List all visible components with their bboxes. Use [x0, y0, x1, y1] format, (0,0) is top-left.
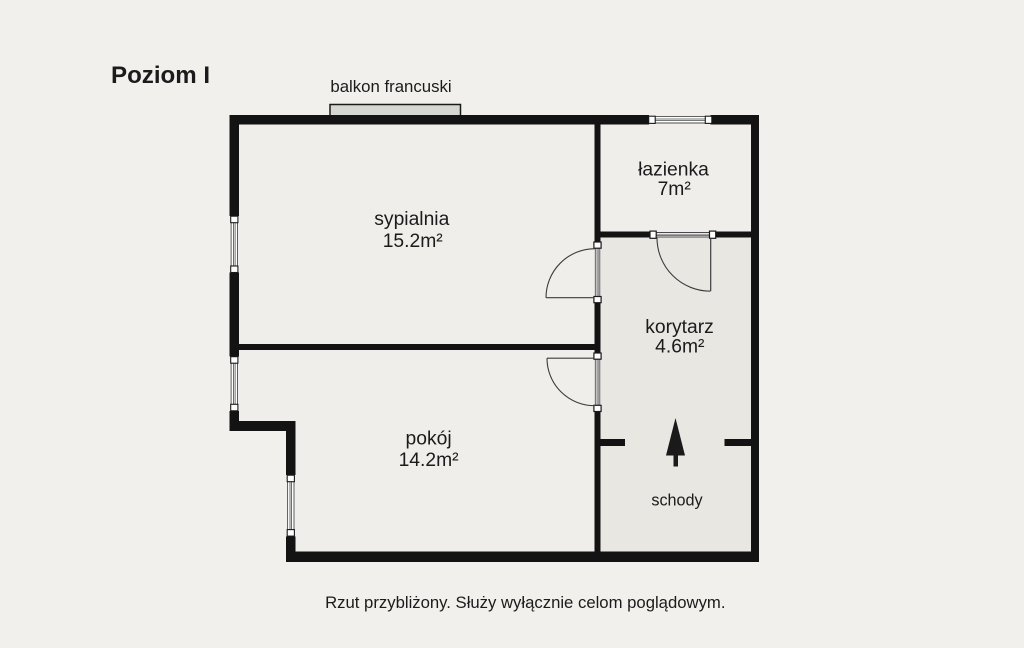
svg-text:Rzut przybliżony. Służy wyłącz: Rzut przybliżony. Służy wyłącznie celom … — [325, 593, 725, 612]
svg-text:balkon francuski: balkon francuski — [330, 77, 451, 96]
svg-text:łazienka: łazienka — [638, 159, 709, 180]
svg-text:15.2m²: 15.2m² — [383, 231, 444, 252]
svg-text:schody: schody — [651, 491, 703, 509]
svg-text:korytarz: korytarz — [645, 317, 714, 338]
svg-text:7m²: 7m² — [658, 179, 692, 200]
svg-text:sypialnia: sypialnia — [374, 209, 449, 230]
svg-text:Poziom I: Poziom I — [111, 62, 210, 89]
svg-text:14.2m²: 14.2m² — [399, 450, 460, 471]
svg-text:4.6m²: 4.6m² — [655, 337, 705, 358]
svg-text:pokój: pokój — [406, 428, 452, 449]
